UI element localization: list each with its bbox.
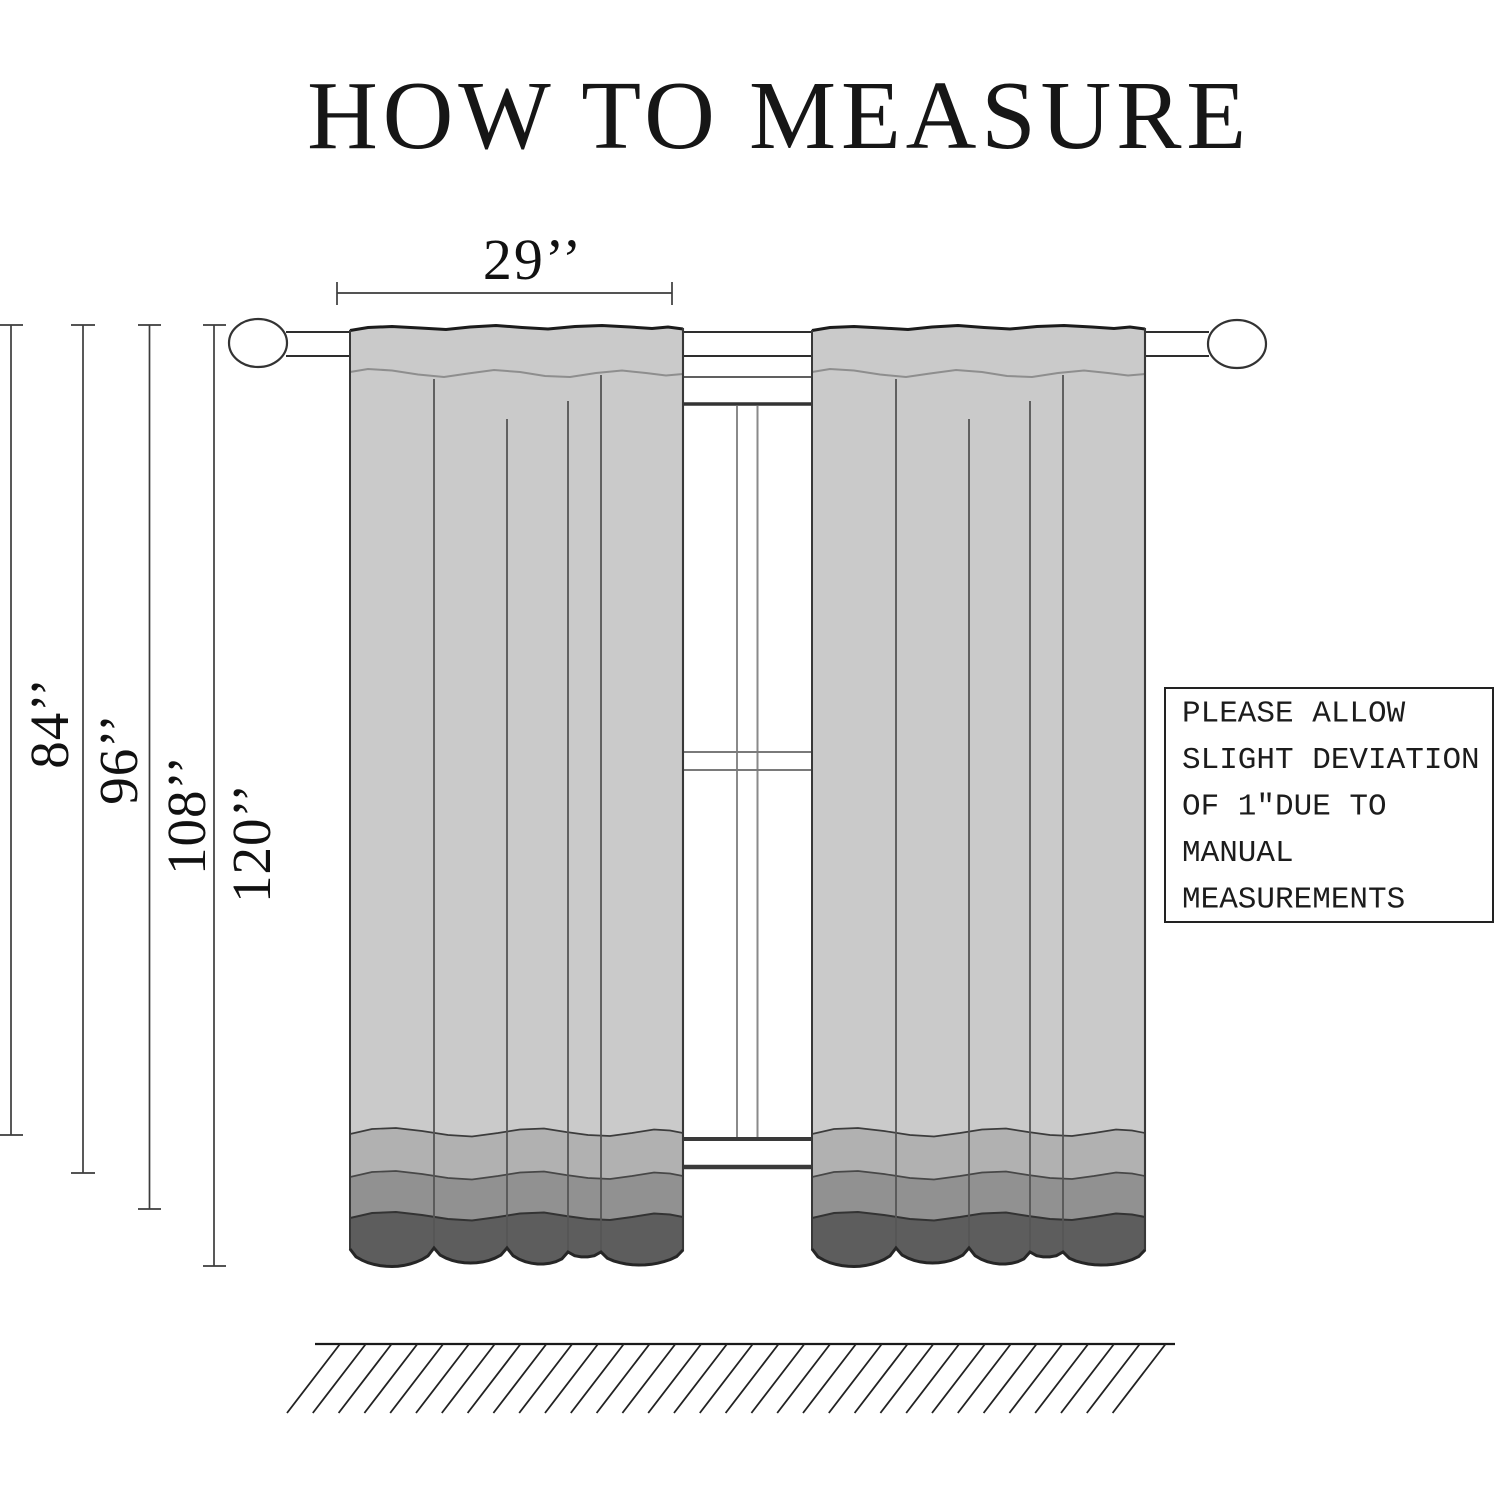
- svg-text:96’’: 96’’: [88, 713, 149, 805]
- svg-text:MEASUREMENTS: MEASUREMENTS: [1182, 883, 1405, 918]
- svg-text:SLIGHT DEVIATION: SLIGHT DEVIATION: [1182, 743, 1480, 778]
- svg-text:84’’: 84’’: [19, 677, 80, 769]
- svg-text:HOW TO MEASURE: HOW TO MEASURE: [307, 62, 1251, 170]
- svg-text:29’’: 29’’: [483, 227, 583, 292]
- svg-text:108’’: 108’’: [156, 755, 217, 875]
- svg-text:PLEASE ALLOW: PLEASE ALLOW: [1182, 697, 1406, 732]
- svg-text:120’’: 120’’: [221, 783, 282, 903]
- svg-text:MANUAL: MANUAL: [1182, 836, 1294, 871]
- svg-text:OF 1″DUE TO: OF 1″DUE TO: [1182, 790, 1387, 825]
